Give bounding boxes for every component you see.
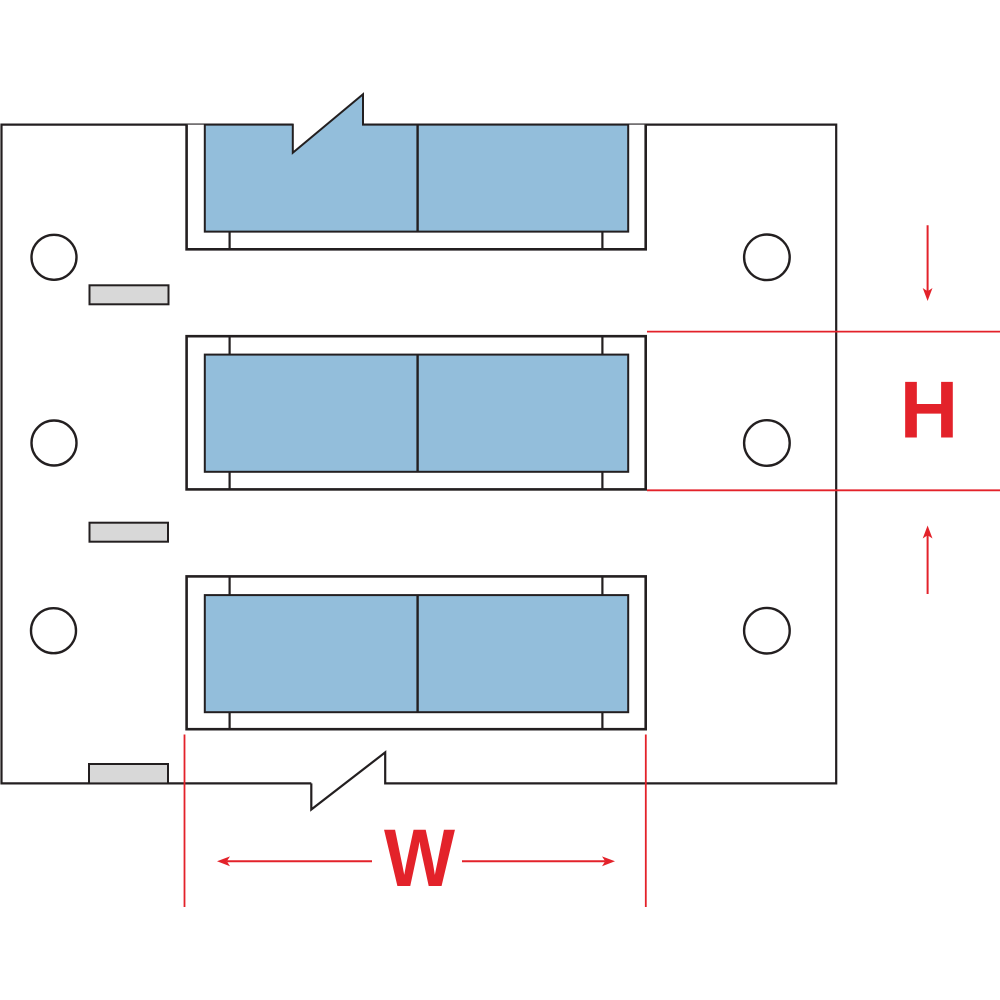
svg-text:W: W [384,813,456,904]
svg-text:H: H [900,366,959,456]
